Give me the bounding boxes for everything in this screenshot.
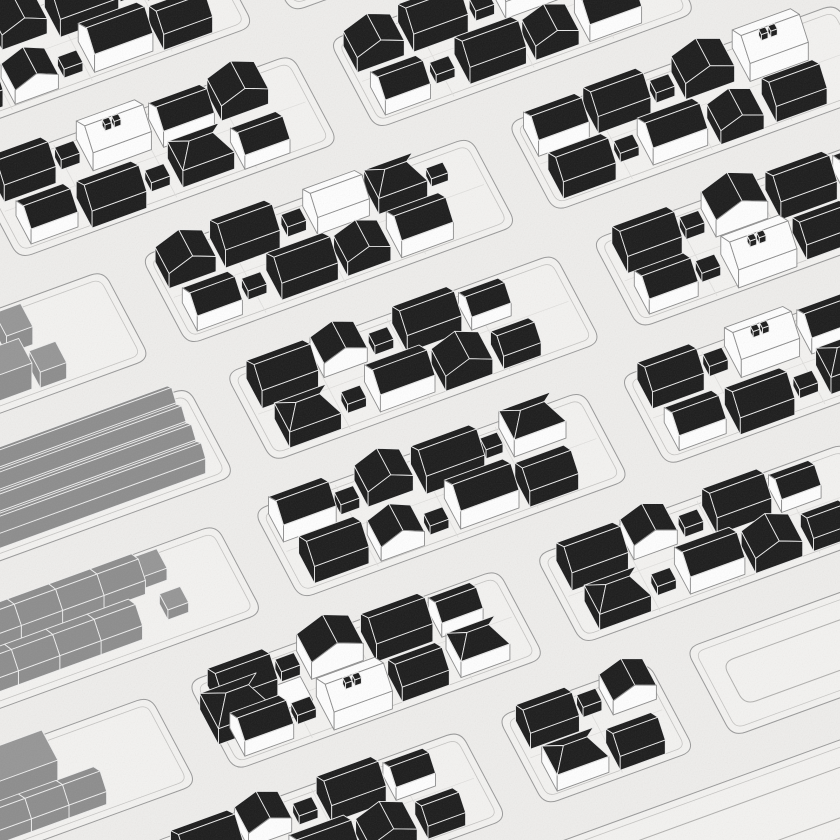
film-grain-overlay-light (0, 0, 840, 840)
axonometric-city-svg (0, 0, 840, 840)
city-map-canvas (0, 0, 840, 840)
